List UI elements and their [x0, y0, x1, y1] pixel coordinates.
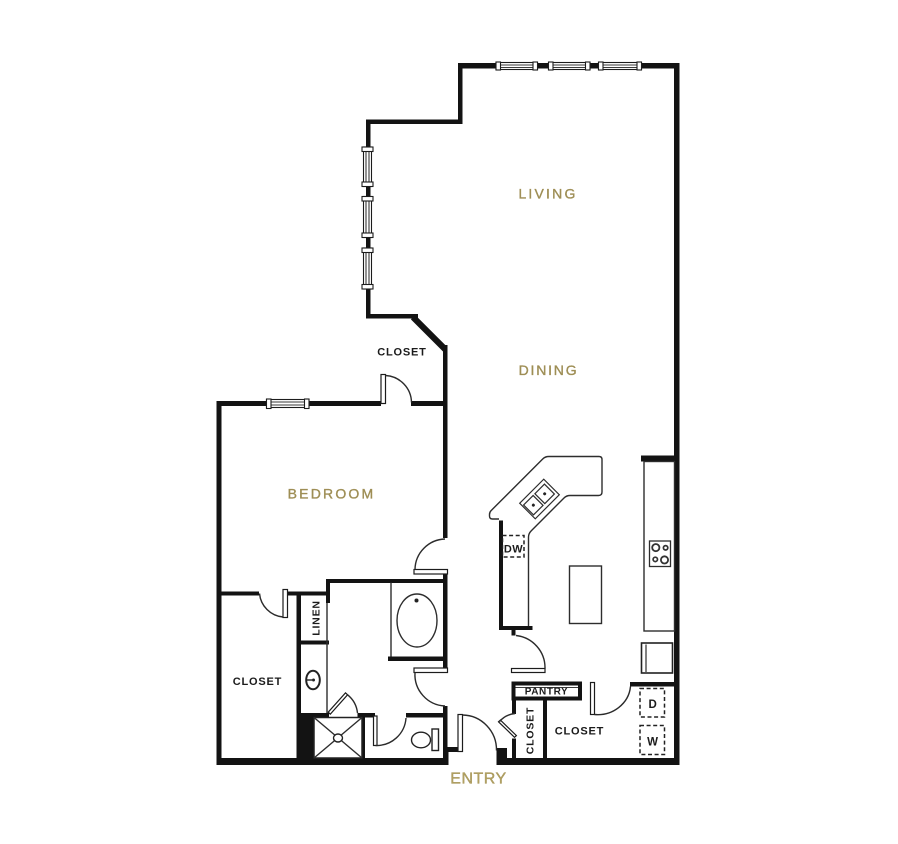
- svg-text:LINEN: LINEN: [311, 600, 323, 636]
- svg-text:BEDROOM: BEDROOM: [288, 486, 376, 502]
- svg-text:CLOSET: CLOSET: [233, 676, 282, 688]
- svg-text:CLOSET: CLOSET: [525, 707, 537, 754]
- svg-text:PANTRY: PANTRY: [525, 687, 569, 698]
- svg-text:CLOSET: CLOSET: [555, 726, 604, 738]
- svg-text:W: W: [647, 737, 659, 749]
- svg-text:CLOSET: CLOSET: [377, 347, 426, 359]
- svg-text:LIVING: LIVING: [518, 185, 577, 201]
- svg-text:DW: DW: [504, 544, 523, 556]
- svg-text:DINING: DINING: [519, 362, 579, 378]
- svg-text:ENTRY: ENTRY: [450, 771, 506, 788]
- svg-text:D: D: [648, 699, 657, 711]
